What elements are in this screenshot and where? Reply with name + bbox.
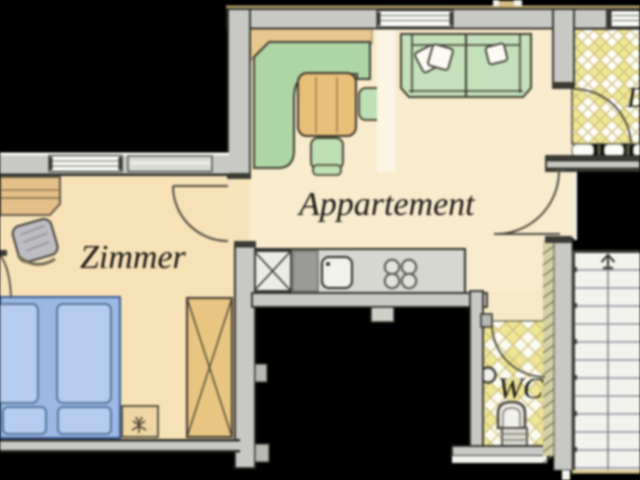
- svg-text:Zimmer: Zimmer: [80, 239, 187, 276]
- svg-text:WC: WC: [498, 372, 544, 405]
- svg-text:D: D: [626, 83, 640, 114]
- svg-text:Appartement: Appartement: [297, 186, 476, 223]
